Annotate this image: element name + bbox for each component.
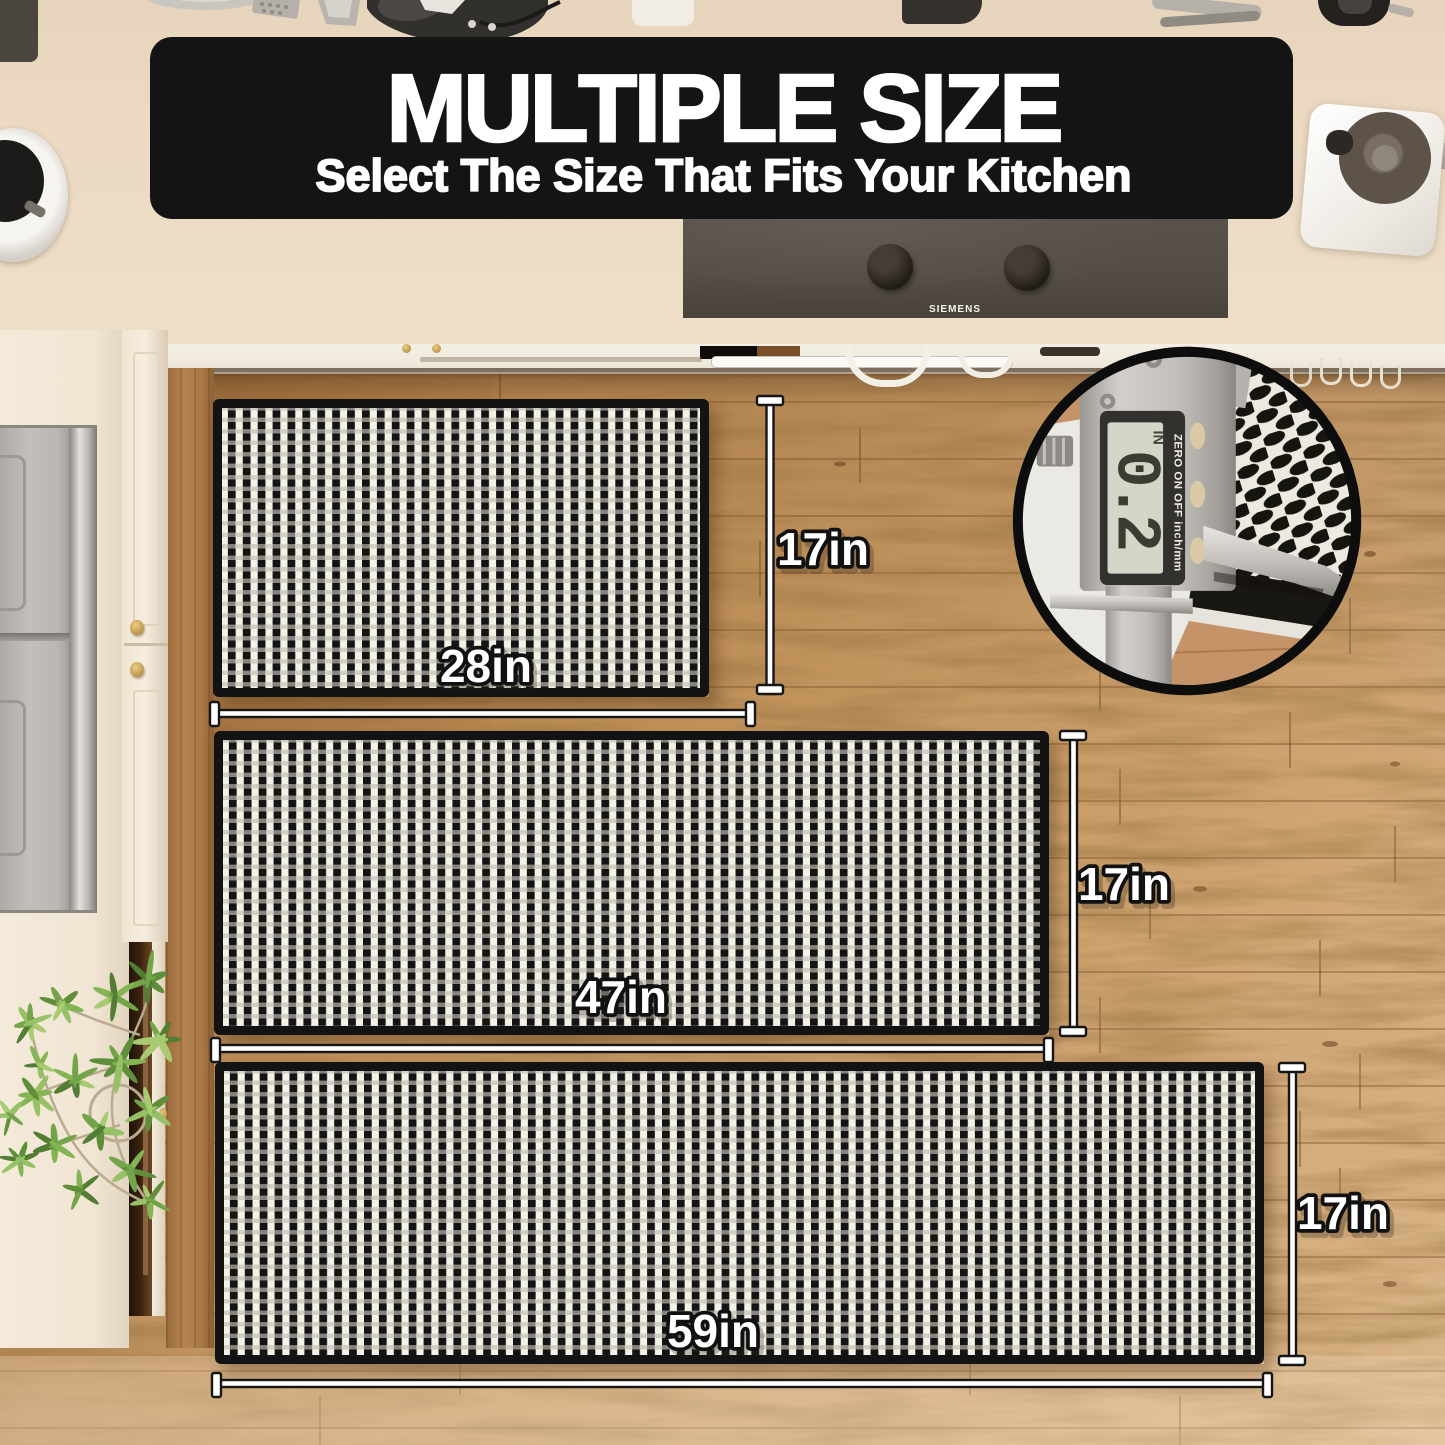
svg-text:17in: 17in (777, 523, 869, 575)
svg-text:17in: 17in (1078, 858, 1170, 910)
svg-text:0.2: 0.2 (1099, 450, 1171, 549)
svg-text:ZERO ON OFF inch/mm: ZERO ON OFF inch/mm (1172, 434, 1184, 572)
svg-text:28in: 28in (440, 640, 532, 692)
svg-text:59in: 59in (667, 1305, 759, 1357)
svg-text:17in: 17in (1297, 1187, 1389, 1239)
svg-text:IN: IN (1149, 431, 1165, 445)
svg-text:47in: 47in (575, 971, 667, 1023)
